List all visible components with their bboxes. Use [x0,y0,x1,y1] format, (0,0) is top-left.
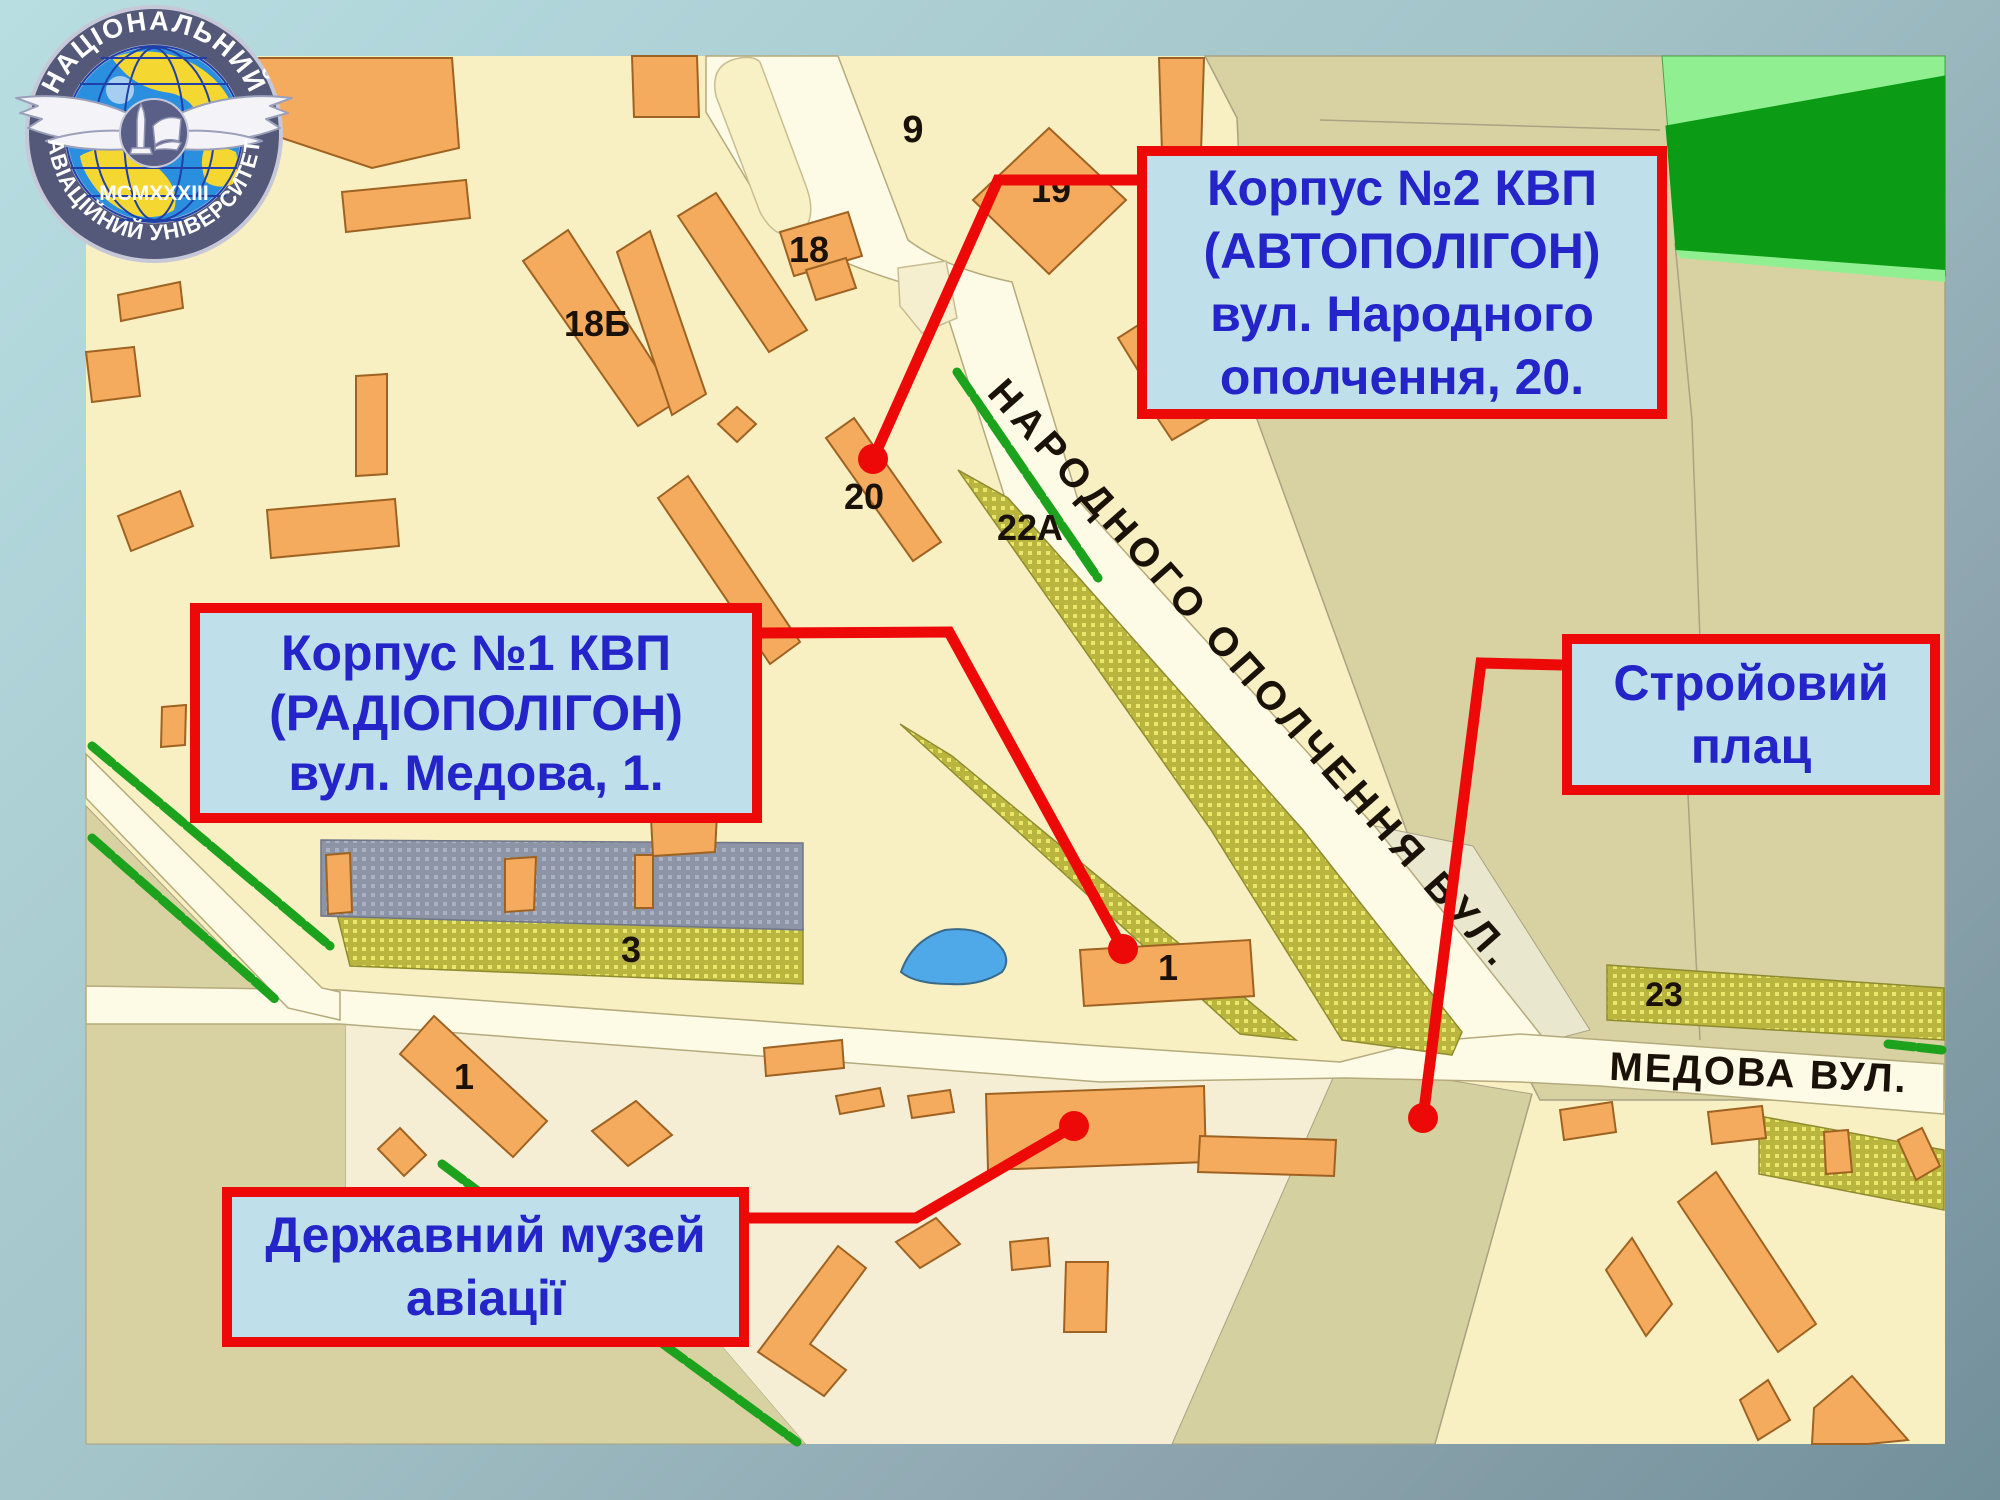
svg-text:18Б: 18Б [564,303,630,344]
svg-text:22А: 22А [997,507,1063,548]
svg-text:18: 18 [789,229,829,270]
svg-text:23: 23 [1645,976,1683,1014]
svg-text:1: 1 [454,1056,474,1097]
svg-text:3: 3 [621,929,641,970]
svg-text:20: 20 [844,476,884,517]
svg-text:9: 9 [902,109,923,151]
svg-text:МСМХХХІІІ: МСМХХХІІІ [99,182,208,205]
svg-text:1: 1 [1158,947,1178,988]
